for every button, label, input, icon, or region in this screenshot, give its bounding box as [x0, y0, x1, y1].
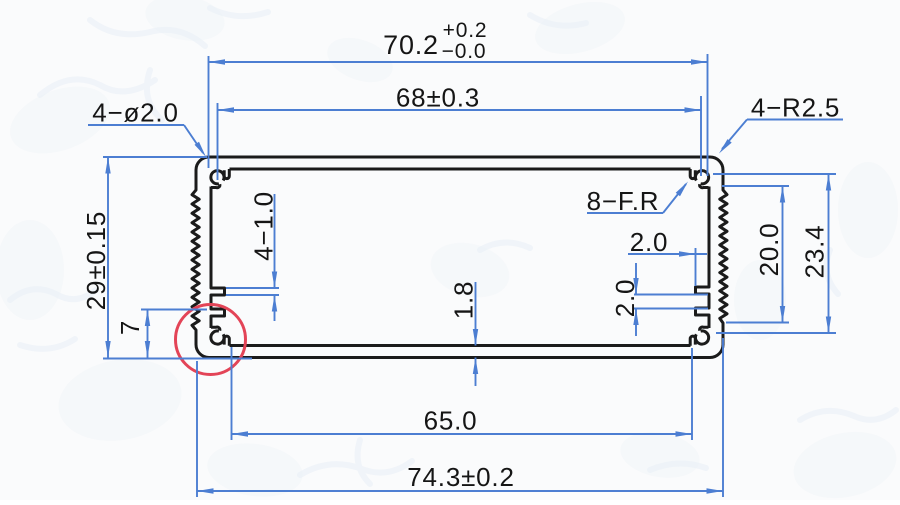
svg-text:4−ø2.0: 4−ø2.0: [92, 98, 178, 128]
svg-text:29±0.15: 29±0.15: [81, 211, 111, 310]
svg-text:7: 7: [115, 320, 145, 335]
svg-text:+0.2: +0.2: [443, 19, 488, 42]
svg-text:8−F.R: 8−F.R: [587, 186, 660, 216]
svg-text:4−1.0: 4−1.0: [249, 191, 279, 261]
svg-text:74.3±0.2: 74.3±0.2: [407, 462, 514, 492]
svg-text:4−R2.5: 4−R2.5: [751, 93, 840, 123]
svg-text:68±0.3: 68±0.3: [396, 83, 480, 113]
svg-text:2.0: 2.0: [630, 227, 669, 257]
svg-text:−0.0: −0.0: [442, 40, 487, 63]
svg-text:70.2: 70.2: [383, 30, 439, 60]
svg-text:65.0: 65.0: [424, 406, 478, 436]
svg-text:2.0: 2.0: [610, 279, 640, 318]
svg-text:23.4: 23.4: [800, 225, 830, 279]
svg-text:20.0: 20.0: [754, 223, 784, 277]
svg-text:1.8: 1.8: [449, 281, 479, 320]
